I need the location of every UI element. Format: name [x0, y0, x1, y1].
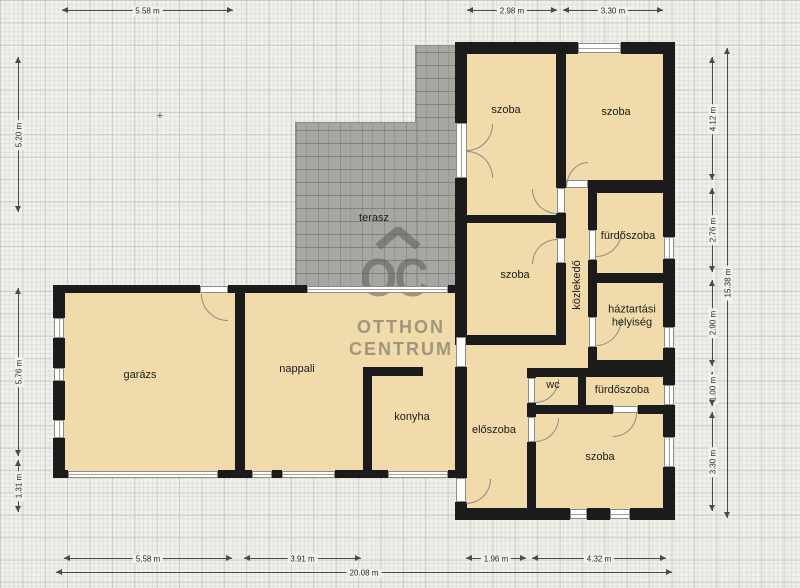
wall	[53, 285, 200, 293]
dimension-right-5: 3.30 m	[708, 412, 717, 511]
room-label-haztartasi: háztartási helyiség	[592, 303, 672, 328]
window	[578, 43, 621, 53]
wall	[663, 42, 675, 237]
room-label-furdoszoba1: fürdőszoba	[601, 230, 655, 242]
wall	[455, 335, 566, 345]
wall	[556, 213, 566, 223]
room-label-kozlekedo: közlekedő	[571, 260, 583, 310]
room-label-furdoszoba2: fürdőszoba	[595, 384, 649, 396]
watermark-logo: OC	[360, 247, 426, 309]
dimension-right-3: 2.90 m	[708, 280, 717, 366]
dimension-left-3: 1.31 m	[14, 460, 23, 512]
dimension-right-4: 1.00 m	[708, 372, 717, 406]
wall	[235, 293, 245, 470]
dimension-right-2: 2.76 m	[708, 188, 717, 272]
window	[570, 509, 587, 519]
wall	[363, 367, 423, 376]
wall	[587, 508, 610, 520]
window	[388, 471, 448, 478]
door	[528, 378, 535, 403]
wall	[638, 405, 675, 414]
wall	[53, 285, 65, 318]
wall	[527, 442, 536, 510]
dimension-bottom-3: 1.96 m	[466, 554, 526, 563]
reference-cross-marker: +	[157, 110, 163, 122]
window	[664, 437, 674, 467]
wall	[588, 273, 675, 283]
wall	[455, 502, 467, 520]
dimension-right-1: 4.12 m	[708, 57, 717, 180]
room-label-konyha: konyha	[394, 411, 429, 423]
wall	[556, 263, 566, 335]
wall	[53, 381, 65, 420]
window	[282, 471, 335, 478]
dimension-bottom-1: 5.58 m	[64, 554, 232, 563]
door	[613, 406, 638, 413]
dimension-bottom-4: 4.32 m	[532, 554, 666, 563]
wall	[228, 285, 307, 293]
window	[664, 237, 674, 259]
dimension-top-1: 5.58 m	[62, 6, 233, 15]
wall	[455, 42, 467, 123]
dimension-right-total: 15.38 m	[723, 48, 732, 518]
wall	[556, 223, 566, 238]
left-wing-floor	[58, 288, 458, 474]
window	[54, 368, 64, 381]
wall-opening	[456, 337, 466, 367]
wall	[272, 470, 282, 478]
wall	[335, 470, 388, 478]
wall	[53, 470, 68, 478]
dimension-left-2: 5.76 m	[14, 288, 23, 456]
wall	[455, 215, 566, 223]
wall	[556, 42, 566, 188]
dimension-top-3: 3.30 m	[563, 6, 663, 15]
window	[307, 286, 448, 293]
door	[557, 188, 565, 213]
dimension-bottom-2: 3.91 m	[244, 554, 361, 563]
room-label-nappali: nappali	[279, 363, 314, 375]
floor-plan: OC OTTHON CENTRUM	[0, 0, 800, 588]
wall	[527, 405, 613, 414]
french-door	[456, 123, 467, 178]
watermark-line2: CENTRUM	[349, 339, 453, 360]
room-label-szoba4: szoba	[585, 451, 614, 463]
wall	[455, 508, 570, 520]
wall	[448, 470, 462, 478]
room-label-garazs: garázs	[123, 369, 156, 381]
window	[252, 471, 272, 478]
room-label-terasz: terasz	[359, 212, 389, 224]
wall	[455, 293, 467, 337]
window	[54, 420, 64, 438]
room-label-wc: wc	[546, 379, 559, 391]
door	[557, 238, 565, 263]
wall	[53, 338, 65, 368]
wall	[588, 188, 597, 230]
room-label-szoba1: szoba	[491, 104, 520, 116]
door	[200, 286, 228, 293]
wall	[527, 368, 536, 378]
window	[664, 385, 674, 405]
watermark-line1: OTTHON	[357, 317, 445, 338]
wall	[448, 285, 462, 293]
door	[589, 230, 596, 260]
wall	[578, 377, 586, 405]
room-label-szoba2: szoba	[601, 106, 630, 118]
entrance-door	[456, 478, 466, 502]
wall	[218, 470, 252, 478]
dimension-top-2: 2.98 m	[467, 6, 557, 15]
door	[528, 417, 535, 442]
room-label-eloszoba: előszoba	[472, 424, 516, 436]
wall	[630, 508, 675, 520]
room-label-szoba3: szoba	[500, 269, 529, 281]
wall	[455, 367, 467, 478]
window	[54, 318, 64, 338]
wall	[363, 367, 372, 470]
wall	[455, 178, 467, 293]
wall	[527, 368, 675, 377]
dimension-left-1: 5.20 m	[14, 57, 23, 212]
dimension-bottom-total: 20.08 m	[56, 568, 672, 577]
wall	[588, 360, 675, 368]
window	[610, 509, 630, 519]
wall	[588, 180, 675, 193]
garage-door	[68, 471, 218, 478]
window	[664, 327, 674, 348]
